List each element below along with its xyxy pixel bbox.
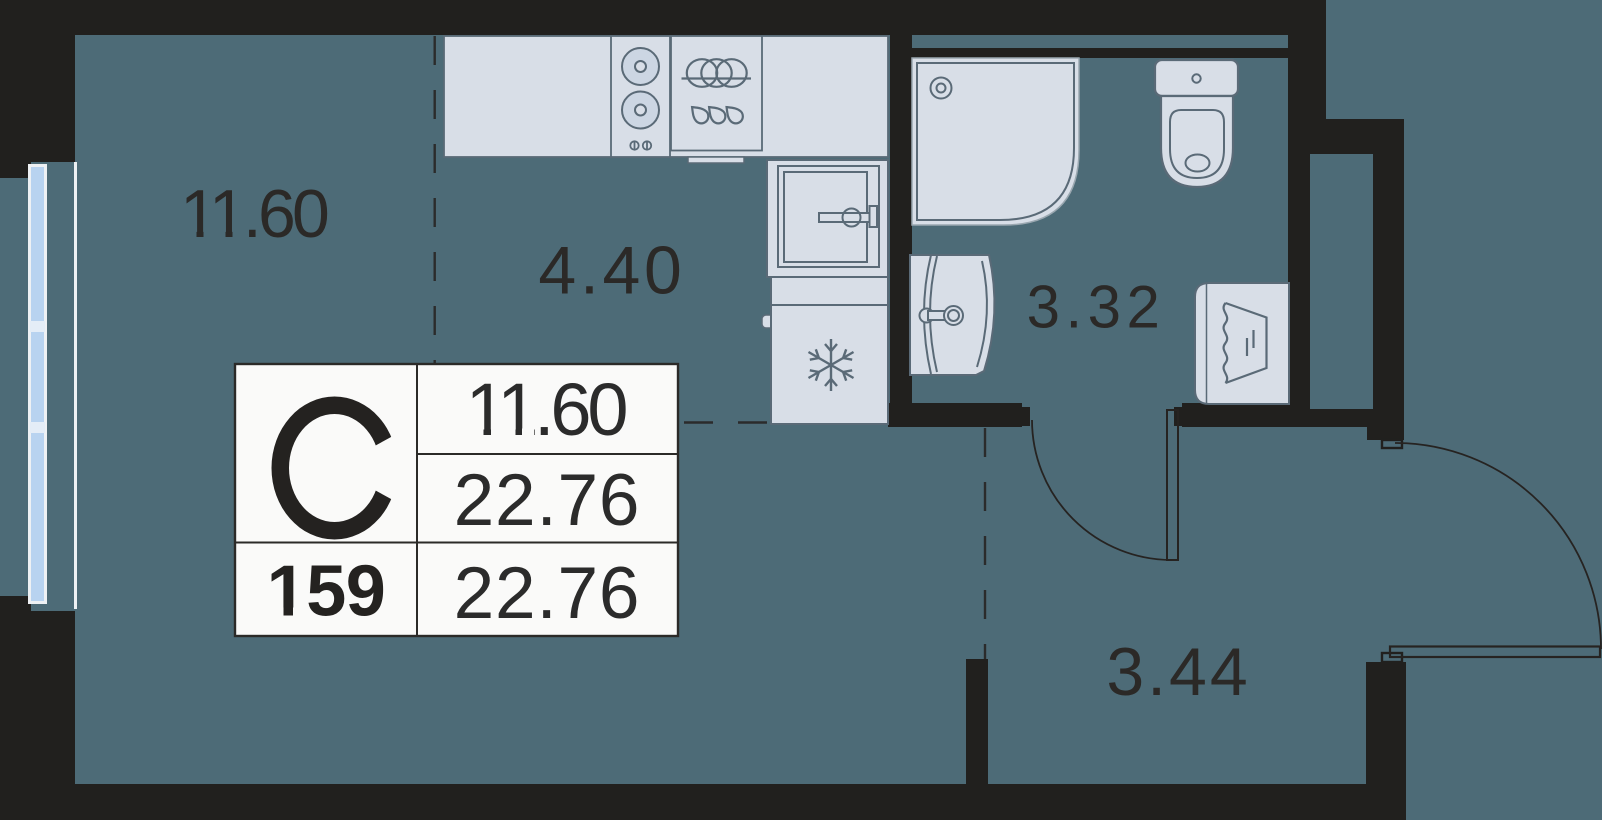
svg-text:22.76: 22.76 <box>454 553 641 634</box>
svg-text:159: 159 <box>267 552 386 632</box>
svg-text:11.60: 11.60 <box>180 176 328 252</box>
svg-text:3.44: 3.44 <box>1106 634 1250 710</box>
svg-text:11.60: 11.60 <box>466 368 627 451</box>
svg-text:3.32: 3.32 <box>1027 274 1166 341</box>
svg-text:22.76: 22.76 <box>454 460 641 541</box>
svg-text:4.40: 4.40 <box>538 233 685 309</box>
